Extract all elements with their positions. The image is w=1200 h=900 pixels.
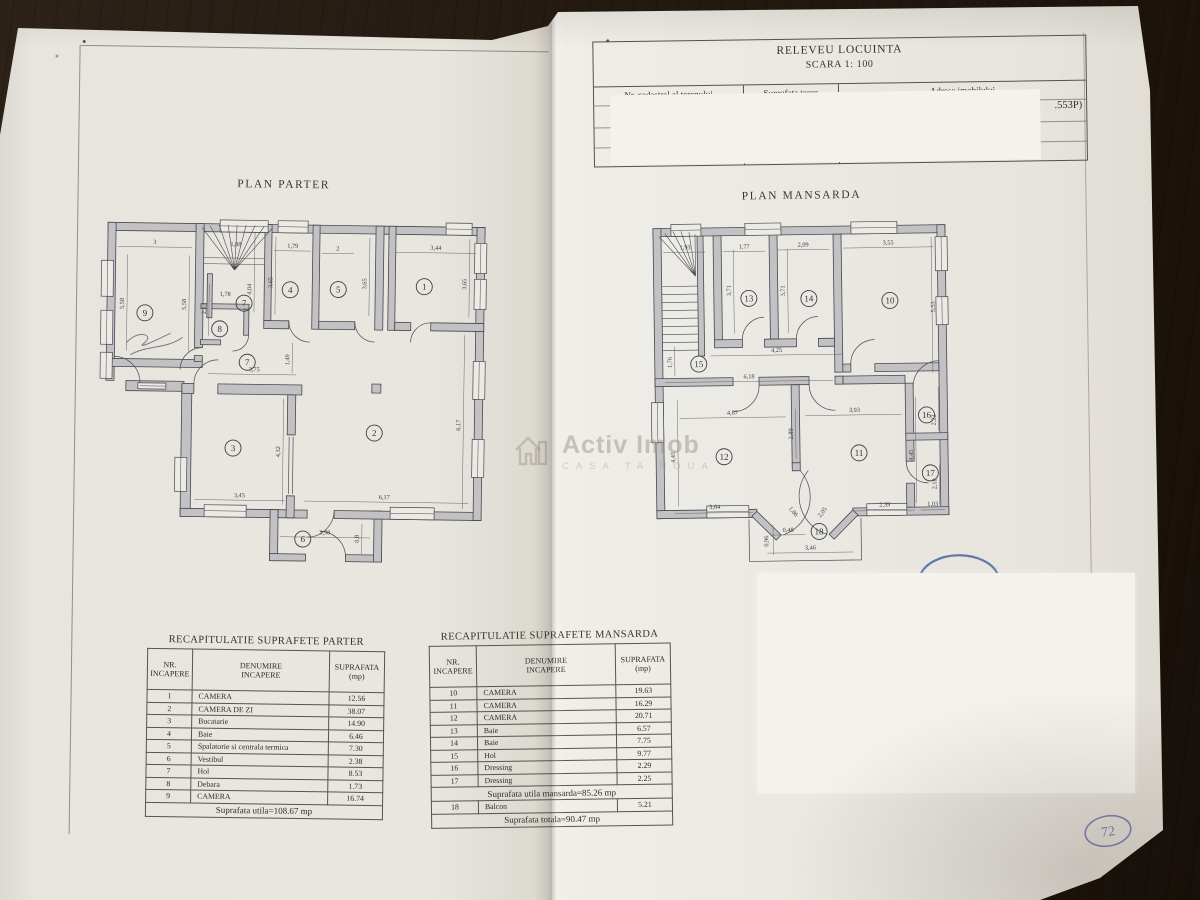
- room-label: 13: [741, 290, 757, 306]
- dimension-label: 1,77: [739, 243, 750, 250]
- svg-text:11: 11: [855, 448, 864, 458]
- redaction-box-bottom: [757, 573, 1135, 793]
- dimension-label: 0,48: [783, 527, 794, 534]
- room-label: 18: [811, 523, 827, 539]
- redaction-box-header: [610, 89, 1041, 165]
- dimension-label: 4,25: [771, 347, 782, 354]
- walls: [653, 225, 949, 542]
- dimension-label: 6,18: [743, 373, 754, 380]
- dimension-label: 3,71: [780, 285, 787, 296]
- dimension-label: 3,46: [805, 544, 816, 551]
- dimension-label: 2,22: [931, 414, 938, 425]
- dimension-label: 1,76: [667, 357, 674, 368]
- paper-sheet: PLAN PARTER: [0, 0, 1200, 900]
- svg-text:12: 12: [720, 452, 729, 462]
- dimension-label: 3,64: [709, 504, 721, 511]
- col-header-suprafata: SUPRAFATA (mp): [615, 643, 671, 685]
- dimension-label: 4,45: [908, 450, 915, 461]
- dimension-label: 3,71: [726, 285, 733, 296]
- col-header-nr: NR. INCAPERE: [429, 646, 477, 688]
- photo-background: PLAN PARTER: [0, 0, 1200, 900]
- page-note-number: 72: [1100, 824, 1116, 841]
- svg-text:18: 18: [815, 526, 825, 536]
- svg-text:15: 15: [694, 359, 704, 369]
- svg-text:14: 14: [804, 293, 814, 303]
- dimension-label: 3,55: [883, 239, 894, 246]
- dimension-label: 1,86: [787, 505, 799, 518]
- dimension-label: 5,53: [930, 301, 937, 312]
- room-label: 11: [851, 445, 867, 461]
- dimension-label: 4,45: [670, 452, 677, 463]
- dimension-label: 2,18: [931, 478, 938, 489]
- dimension-label: 3,93: [849, 407, 860, 414]
- dimension-label: 2,39: [879, 501, 890, 508]
- dimension-label: 1,03: [927, 501, 938, 508]
- svg-text:13: 13: [744, 293, 754, 303]
- room-label: 14: [801, 290, 817, 306]
- page-note: 72: [1072, 806, 1144, 856]
- dimension-label: 2,05: [817, 506, 829, 519]
- dimension-label: 4,87: [727, 410, 738, 417]
- dimension-label: 0,96: [763, 536, 770, 547]
- svg-text:10: 10: [885, 295, 895, 305]
- dimension-label: 1,93: [680, 244, 691, 251]
- floor-plan-mansarda: 1011121314151617181,931,772,093,553,713,…: [645, 214, 970, 568]
- dimension-label: 2,89: [788, 428, 795, 439]
- svg-text:17: 17: [926, 468, 936, 478]
- dimension-label: 2,09: [798, 242, 809, 249]
- room-label: 15: [691, 356, 707, 372]
- plan-mansarda-title: PLAN MANSARDA: [696, 188, 906, 203]
- room-label: 10: [882, 292, 898, 308]
- room-label: 12: [716, 449, 732, 465]
- paper-fold: [534, 0, 568, 900]
